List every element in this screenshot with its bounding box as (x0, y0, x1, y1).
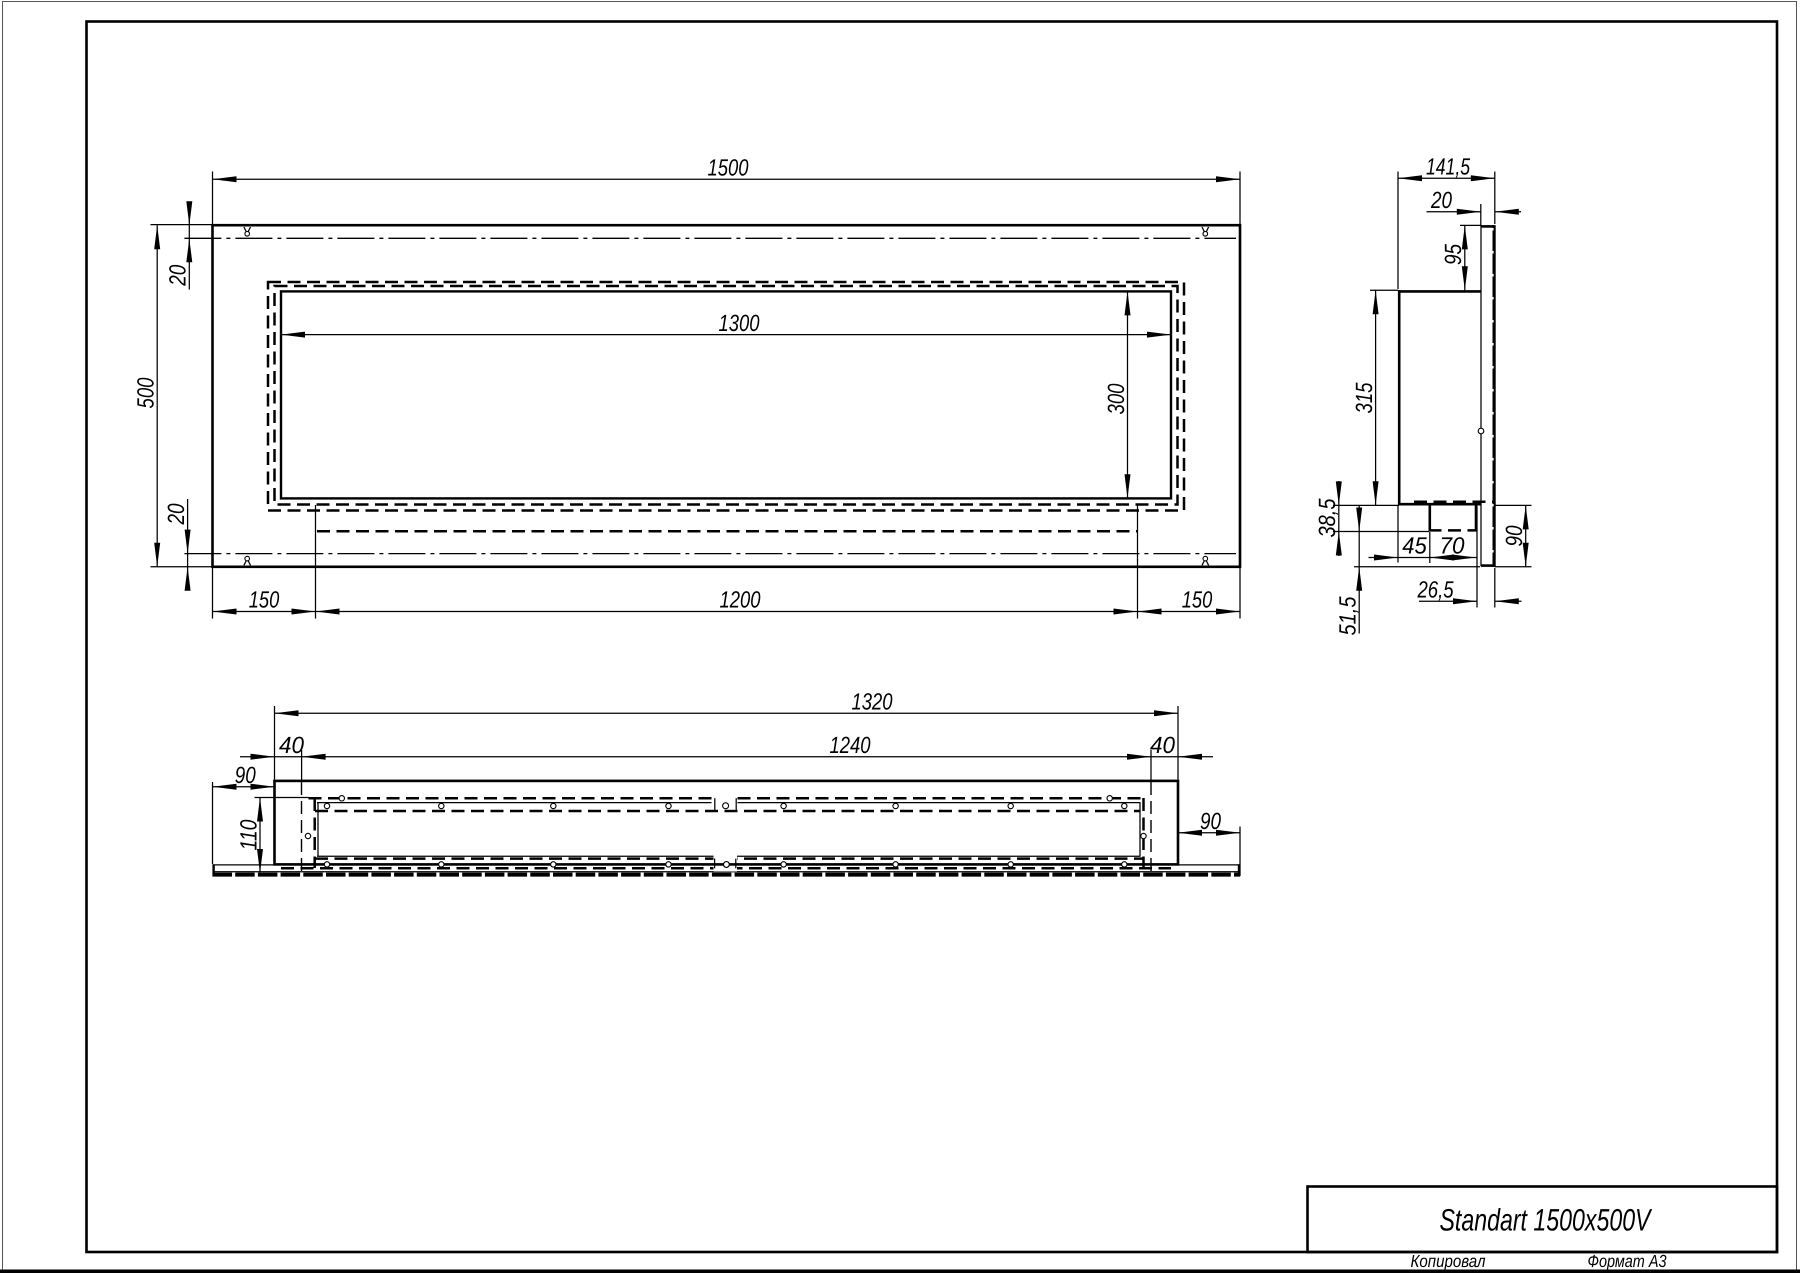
svg-text:20: 20 (1430, 187, 1452, 213)
svg-text:95: 95 (1440, 243, 1466, 265)
svg-text:Копировал: Копировал (1411, 1251, 1486, 1271)
svg-text:150: 150 (249, 587, 280, 613)
svg-text:Standart 1500x500V: Standart 1500x500V (1440, 1203, 1653, 1238)
svg-text:110: 110 (235, 820, 261, 851)
svg-text:1320: 1320 (852, 689, 893, 715)
svg-text:90: 90 (1501, 526, 1527, 547)
svg-text:500: 500 (133, 378, 159, 409)
svg-text:315: 315 (1351, 382, 1377, 414)
svg-text:40: 40 (279, 732, 304, 758)
svg-text:1300: 1300 (719, 310, 760, 336)
svg-text:1240: 1240 (830, 732, 871, 758)
svg-text:300: 300 (1103, 384, 1129, 415)
svg-text:150: 150 (1182, 587, 1213, 613)
svg-text:1500: 1500 (708, 155, 749, 181)
svg-text:Формат А3: Формат А3 (1588, 1251, 1667, 1271)
svg-text:90: 90 (1200, 808, 1221, 834)
svg-text:45: 45 (1402, 533, 1427, 559)
svg-text:90: 90 (235, 762, 256, 788)
svg-text:40: 40 (1150, 732, 1175, 758)
svg-text:26,5: 26,5 (1417, 577, 1455, 603)
svg-text:1200: 1200 (720, 587, 761, 613)
svg-text:141,5: 141,5 (1426, 154, 1471, 180)
svg-text:70: 70 (1440, 533, 1465, 559)
svg-text:20: 20 (163, 504, 189, 526)
svg-text:38,5: 38,5 (1314, 498, 1340, 538)
svg-text:51,5: 51,5 (1334, 596, 1360, 636)
svg-text:20: 20 (165, 265, 191, 287)
